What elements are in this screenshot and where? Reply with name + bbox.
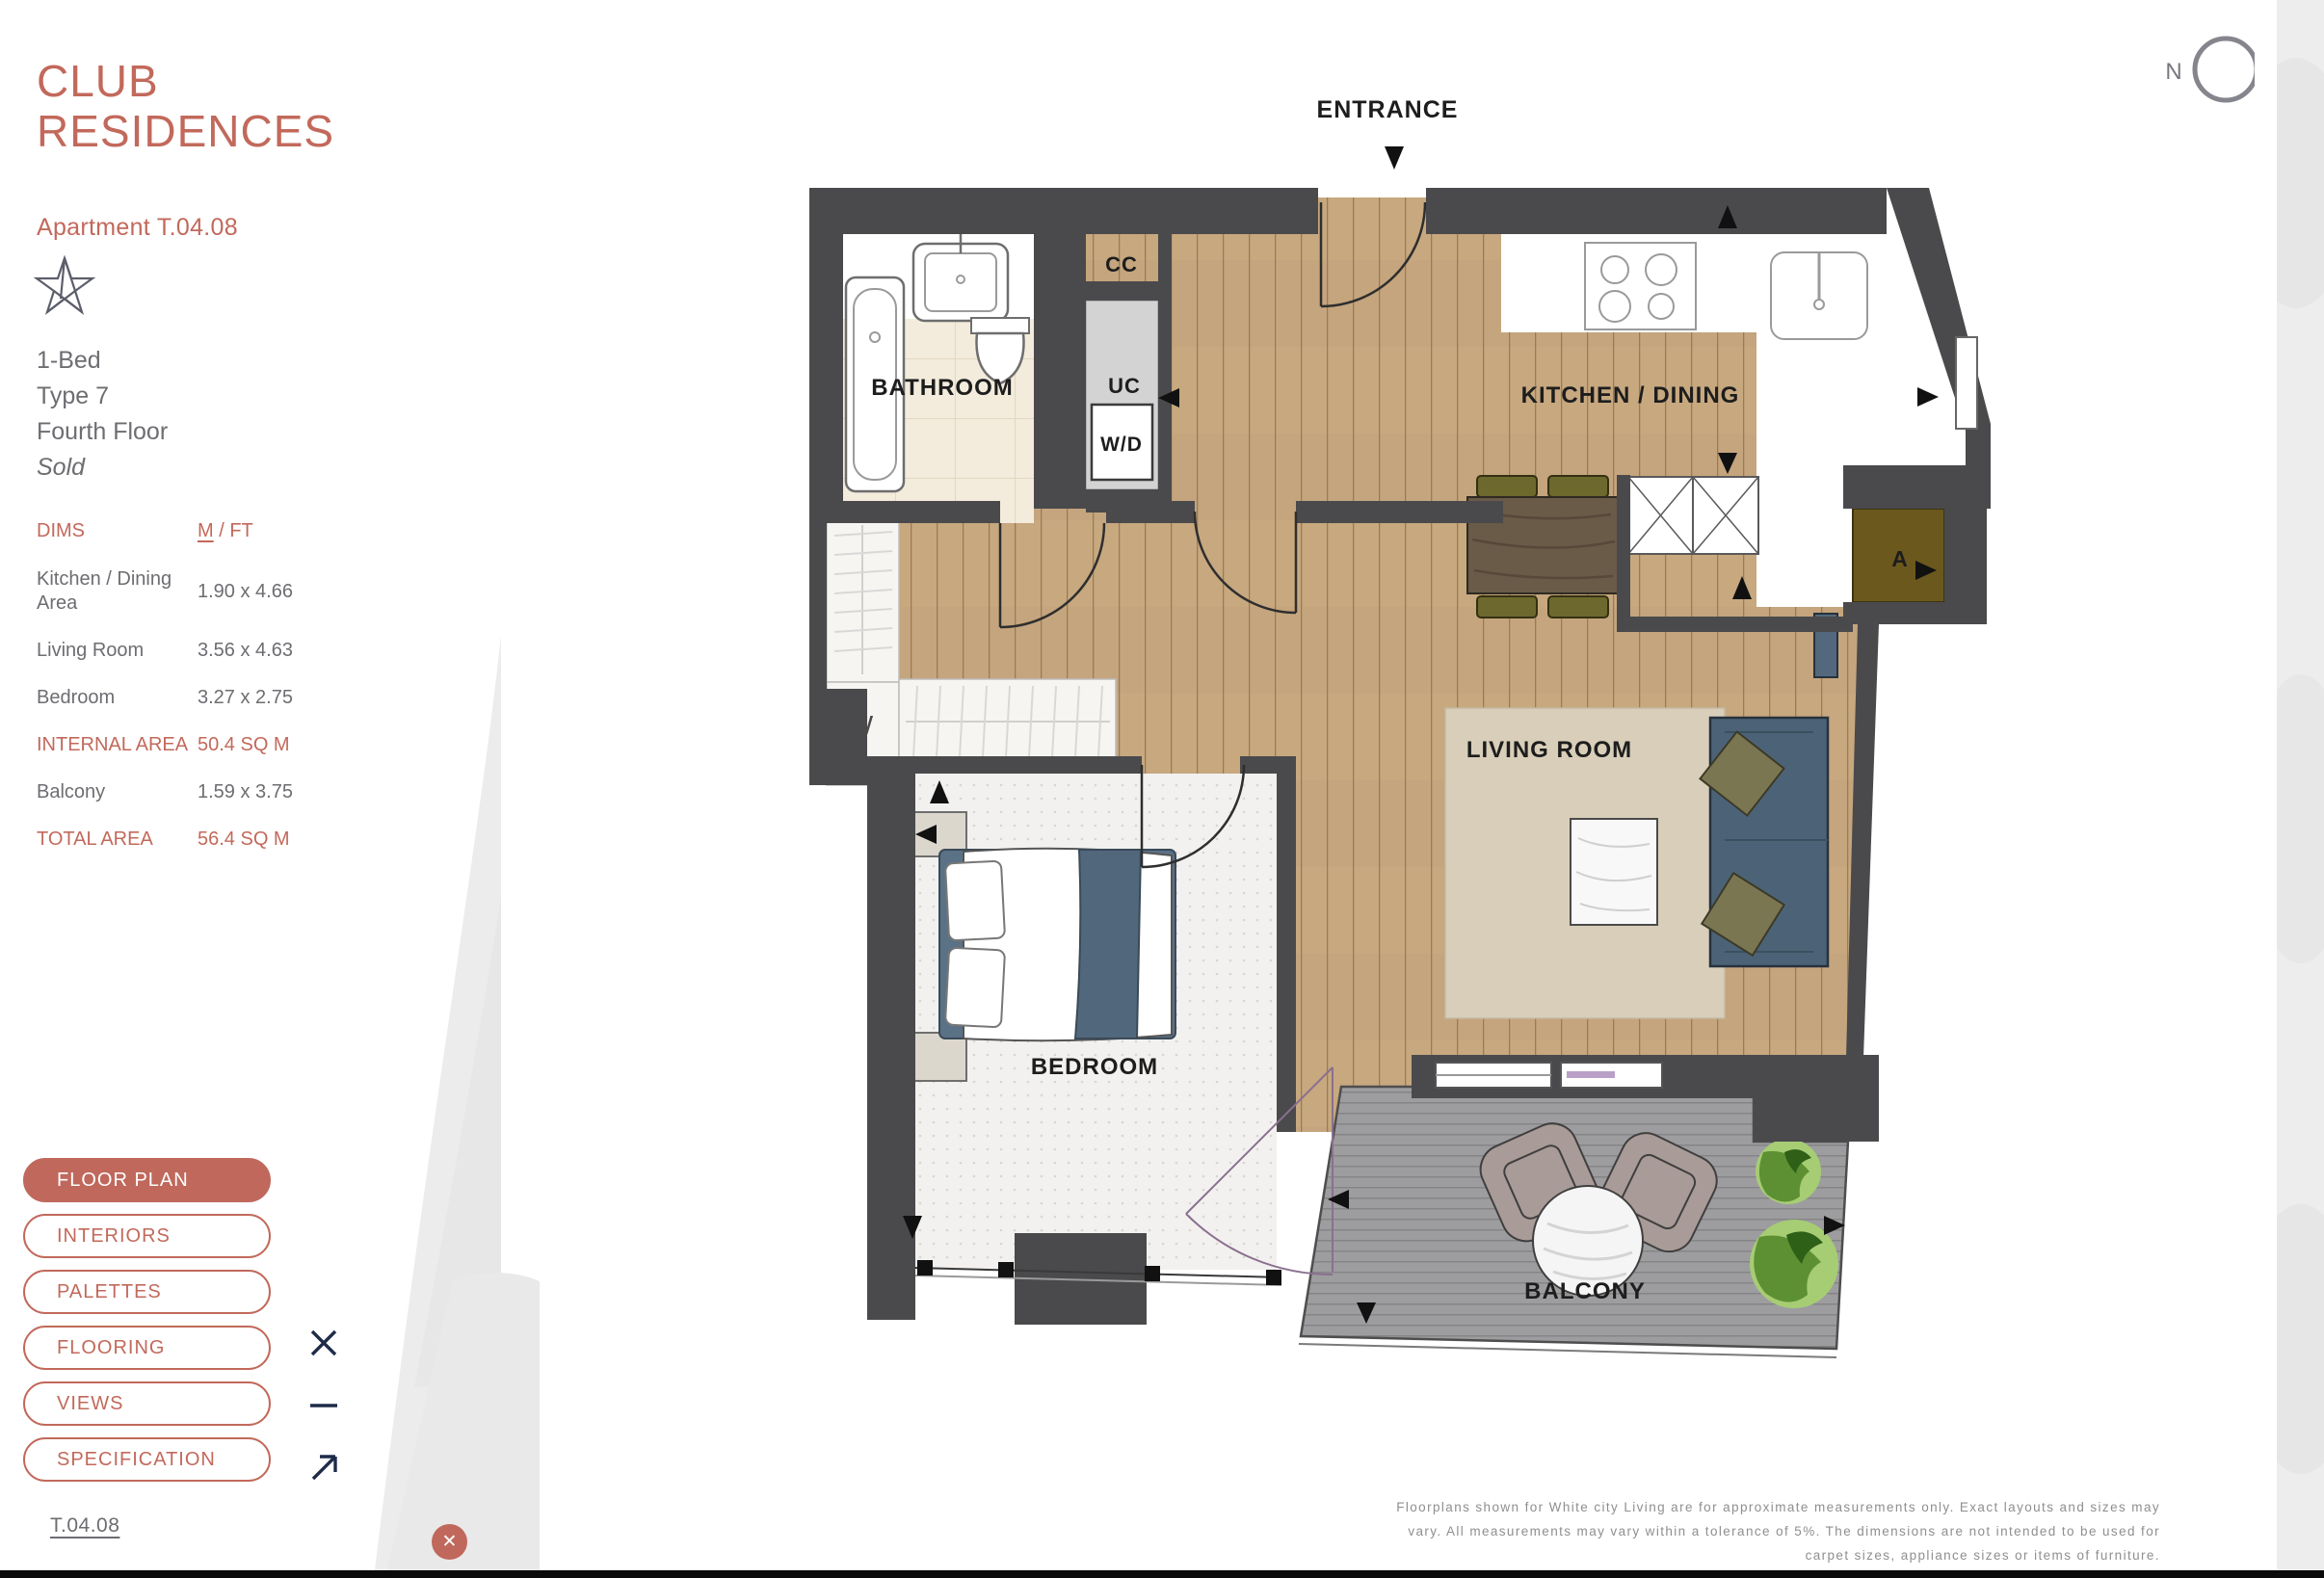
plant [1756, 1139, 1821, 1204]
living-window [1436, 1063, 1662, 1088]
disclaimer-line-3: carpet sizes, appliance sizes or items o… [1235, 1543, 2160, 1567]
bedroom-label: BEDROOM [1031, 1054, 1158, 1080]
dims-heading: DIMS [37, 520, 198, 542]
title-line-2: RESIDENCES [37, 106, 334, 156]
tab-floor-plan[interactable]: FLOOR PLAN [23, 1158, 271, 1202]
apartment-code-link[interactable]: T.04.08 [50, 1514, 119, 1538]
sidebar-nav: FLOOR PLAN INTERIORS PALETTES FLOORING V… [23, 1158, 271, 1493]
av-unit-label: A [1891, 546, 1909, 571]
kitchen-sink [1771, 252, 1867, 339]
expand-icon[interactable] [306, 1451, 341, 1486]
kitchen-window [1956, 337, 1977, 429]
table-row-internal-area: INTERNAL AREA 50.4 SQ M [37, 733, 335, 757]
entrance-label: ENTRANCE [1317, 96, 1459, 123]
table-row: Bedroom 3.27 x 2.75 [37, 686, 335, 710]
info-type: Type 7 [37, 379, 168, 414]
unit-toggle[interactable]: M / FT [198, 520, 253, 542]
star-icon [33, 254, 96, 323]
cc-label: CC [1105, 252, 1138, 276]
tab-flooring[interactable]: FLOORING [23, 1326, 271, 1370]
living-room-label: LIVING ROOM [1466, 737, 1632, 763]
disclaimer-line-1: Floorplans shown for White city Living a… [1235, 1495, 2160, 1519]
table-row: Balcony 1.59 x 3.75 [37, 780, 335, 804]
info-beds: 1-Bed [37, 343, 168, 379]
tab-palettes[interactable]: PALETTES [23, 1270, 271, 1314]
kitchen-dining-label: KITCHEN / DINING [1521, 382, 1740, 408]
coffee-table [1571, 819, 1657, 925]
balcony-label: BALCONY [1524, 1278, 1646, 1304]
close-x-glyph: ✕ [442, 1531, 458, 1553]
unit-ft[interactable]: / FT [214, 520, 253, 541]
hob [1585, 243, 1696, 329]
uc-label: UC [1108, 374, 1141, 398]
apartment-label: Apartment T.04.08 [37, 214, 238, 242]
tab-interiors[interactable]: INTERIORS [23, 1214, 271, 1258]
washer-dryer-label: W/D [1100, 434, 1143, 456]
sofa [1700, 718, 1828, 966]
dims-header: DIMS M / FT [37, 520, 335, 542]
floor-plan: ENTRANCE CC UC W/D BATHROOM KITCHEN / DI… [800, 19, 2255, 1421]
apartment-info: 1-Bed Type 7 Fourth Floor Sold [37, 343, 168, 486]
tab-specification[interactable]: SPECIFICATION [23, 1437, 271, 1482]
table-row: Kitchen / Dining Area 1.90 x 4.66 [37, 567, 335, 616]
close-plan-button[interactable]: ✕ [432, 1524, 467, 1560]
minimize-icon[interactable] [306, 1388, 341, 1423]
disclaimer-line-2: vary. All measurements may vary within a… [1235, 1519, 2160, 1543]
right-decor-strip [2277, 0, 2324, 1578]
disclaimer-text: Floorplans shown for White city Living a… [1235, 1495, 2160, 1567]
window-controls [306, 1326, 345, 1513]
info-floor: Fourth Floor [37, 414, 168, 450]
dimensions-table: DIMS M / FT Kitchen / Dining Area 1.90 x… [37, 520, 335, 875]
page-title: CLUB RESIDENCES [37, 56, 334, 156]
bathroom-label: BATHROOM [871, 375, 1014, 401]
table-row-total-area: TOTAL AREA 56.4 SQ M [37, 828, 335, 852]
compass-north-label: N [2165, 59, 2181, 85]
bottom-bar [0, 1570, 2324, 1578]
kitchen-units [1628, 477, 1758, 554]
unit-m[interactable]: M [198, 520, 214, 541]
close-icon[interactable] [306, 1326, 341, 1360]
table-row: Living Room 3.56 x 4.63 [37, 639, 335, 663]
tab-views[interactable]: VIEWS [23, 1381, 271, 1426]
compass: N [2165, 39, 2255, 100]
title-line-1: CLUB [37, 56, 334, 106]
wardrobe-label: W [848, 710, 874, 740]
status-badge: Sold [37, 450, 168, 486]
